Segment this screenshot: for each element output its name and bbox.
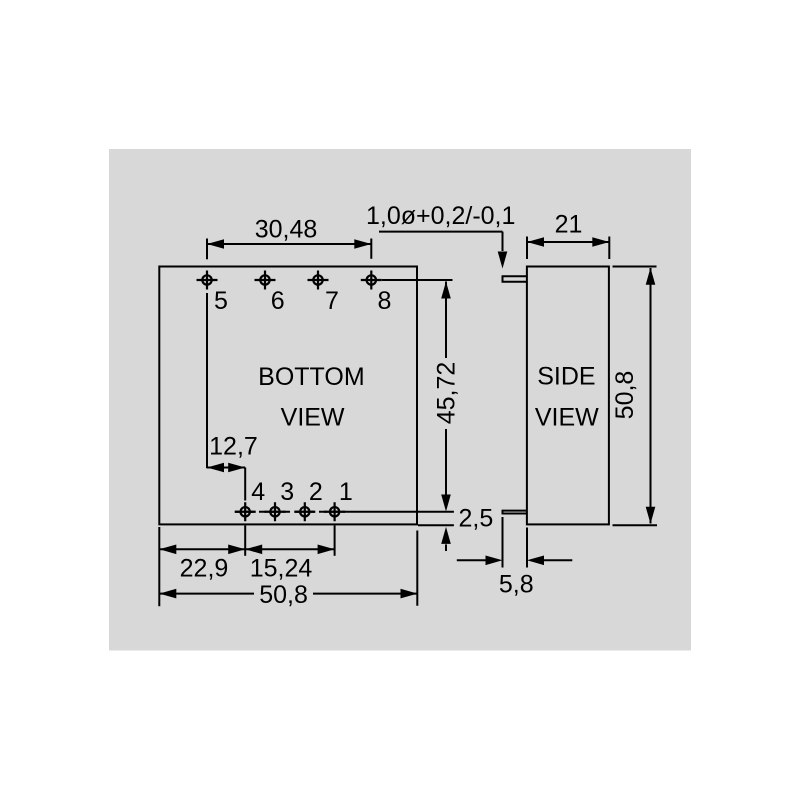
svg-text:1: 1 xyxy=(339,478,353,506)
svg-text:12,7: 12,7 xyxy=(209,432,258,460)
svg-text:6: 6 xyxy=(271,287,285,315)
svg-text:50,8: 50,8 xyxy=(259,581,308,609)
svg-text:VIEW: VIEW xyxy=(535,404,599,432)
svg-text:4: 4 xyxy=(251,478,265,506)
svg-text:22,9: 22,9 xyxy=(180,555,229,583)
svg-text:1,0ø+0,2/-0,1: 1,0ø+0,2/-0,1 xyxy=(366,202,515,230)
svg-text:45,72: 45,72 xyxy=(433,362,461,425)
svg-text:30,48: 30,48 xyxy=(255,215,318,243)
svg-text:15,24: 15,24 xyxy=(250,555,313,583)
svg-text:BOTTOM: BOTTOM xyxy=(258,363,364,391)
svg-text:21: 21 xyxy=(555,210,583,238)
svg-text:5: 5 xyxy=(214,287,228,315)
svg-text:8: 8 xyxy=(378,287,392,315)
svg-text:SIDE: SIDE xyxy=(537,363,595,391)
svg-text:VIEW: VIEW xyxy=(281,404,345,432)
svg-text:2,5: 2,5 xyxy=(459,505,494,533)
svg-text:7: 7 xyxy=(325,287,339,315)
svg-text:50,8: 50,8 xyxy=(611,371,639,420)
svg-text:2: 2 xyxy=(309,478,323,506)
svg-text:3: 3 xyxy=(280,478,294,506)
svg-text:5,8: 5,8 xyxy=(499,570,534,598)
